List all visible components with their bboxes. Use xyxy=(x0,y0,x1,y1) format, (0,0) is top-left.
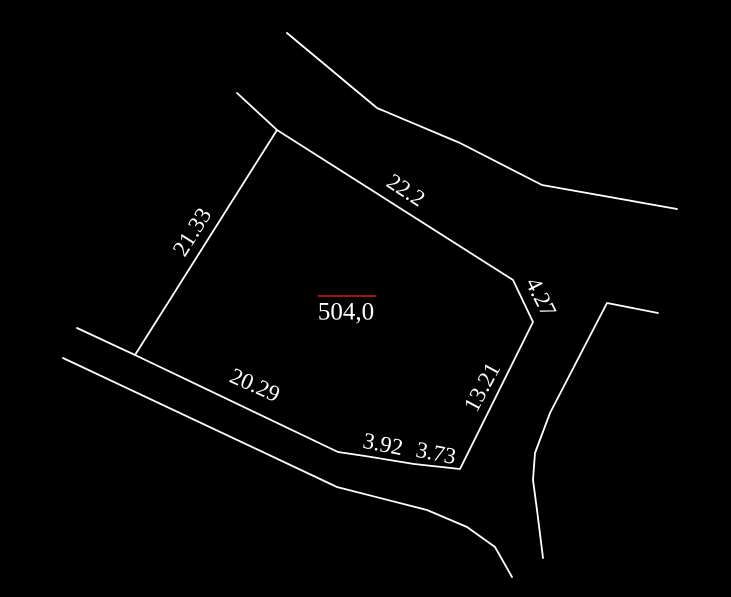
cadastral-parcel-drawing: 21.3322.24.2713.2120.293.923.73504,0 xyxy=(0,0,731,597)
dimension-label: 20.29 xyxy=(226,363,283,407)
dimension-label: 3.92 xyxy=(361,428,405,460)
parcel-area-label: 504,0 xyxy=(318,299,374,326)
dimension-label: 22.2 xyxy=(382,169,429,212)
cadastral-drawing-stage: 21.3322.24.2713.2120.293.923.73504,0 xyxy=(0,0,731,597)
upper-road-far-edge-line xyxy=(287,33,677,209)
dimension-label: 21.33 xyxy=(168,203,217,260)
lower-road-near-edge-line xyxy=(77,328,135,355)
upper-road-near-edge-line xyxy=(237,93,277,130)
dimension-label: 4.27 xyxy=(521,273,562,320)
dimension-label: 13.21 xyxy=(459,358,505,415)
right-road-far-edge-line xyxy=(533,303,658,558)
